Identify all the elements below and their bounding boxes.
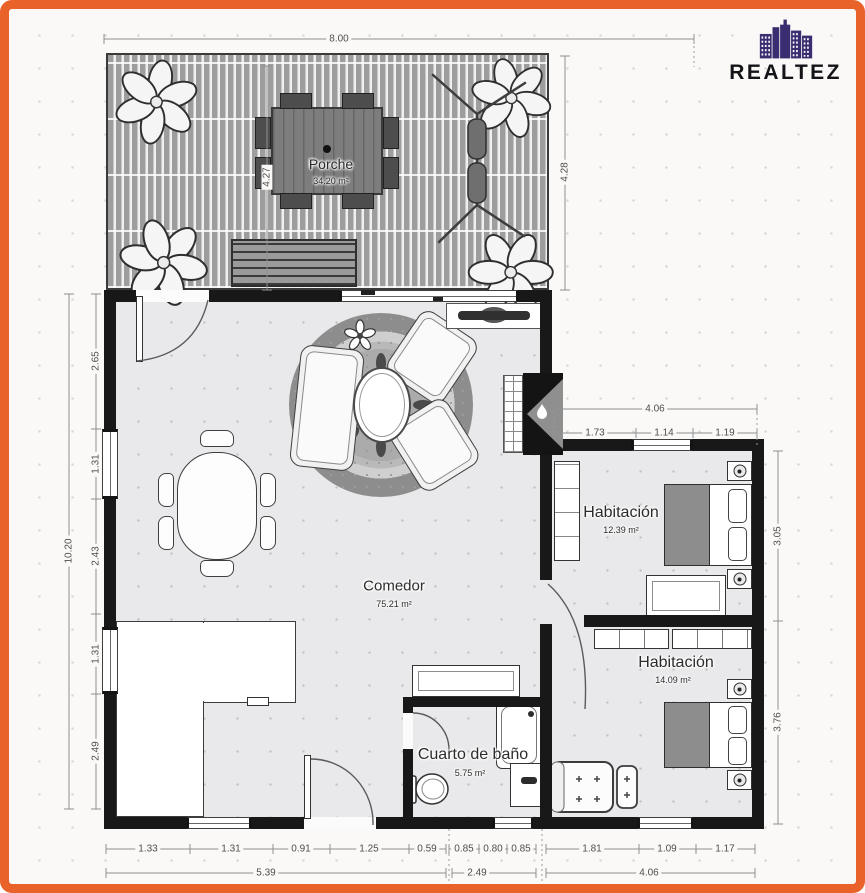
dim-label-top-width: 8.00 xyxy=(326,34,351,45)
flower-decor-icon xyxy=(343,319,377,358)
city-skyline-icon xyxy=(759,19,813,59)
dim-label-bed2-height: 3.76 xyxy=(773,709,784,734)
wardrobe xyxy=(554,461,580,561)
dining-chair xyxy=(200,560,234,577)
dim-label-total: 4.06 xyxy=(636,868,661,879)
wardrobe xyxy=(594,629,669,649)
window xyxy=(637,817,694,829)
nightstand xyxy=(727,679,752,699)
brand-logo: REALTEZ xyxy=(729,19,842,85)
brand-name: REALTEZ xyxy=(729,61,842,85)
room-label-porche: Porche xyxy=(309,156,353,172)
room-label-habitacion-1: Habitación xyxy=(583,504,659,522)
dim-label-porch-right: 4.28 xyxy=(560,159,571,184)
window xyxy=(102,429,118,499)
dim-label-bed1-width: 4.06 xyxy=(642,404,667,415)
potted-plant-icon xyxy=(106,52,206,157)
door-leaf xyxy=(136,296,143,362)
dim-label: 1.25 xyxy=(356,844,381,855)
dim-label: 1.73 xyxy=(582,428,607,439)
room-label-comedor: Comedor xyxy=(363,578,425,595)
room-label-bano: Cuarto de baño xyxy=(418,746,528,764)
dining-chair xyxy=(158,473,174,507)
lamp-icon xyxy=(733,774,746,787)
wall xyxy=(403,697,542,707)
dim-label: 0.85 xyxy=(451,844,476,855)
kitchen-counter xyxy=(116,621,204,817)
dim-label: 2.49 xyxy=(91,738,102,763)
room-area-porche: 34.20 m² xyxy=(313,176,349,186)
hall-door-gap xyxy=(540,580,552,624)
dim-label: 2.65 xyxy=(91,348,102,373)
dining-table xyxy=(177,452,257,560)
room-area-bano: 5.75 m² xyxy=(455,768,486,778)
dim-label: 1.14 xyxy=(651,428,676,439)
room-label-habitacion-2: Habitación xyxy=(638,654,714,672)
wall xyxy=(403,697,413,713)
lamp-icon xyxy=(733,683,746,696)
wall xyxy=(584,615,752,627)
wall xyxy=(540,290,552,829)
counter-seam xyxy=(118,695,202,703)
dim-label-left-total: 10.20 xyxy=(64,535,75,566)
dining-chair xyxy=(260,516,276,550)
door-leaf xyxy=(304,755,311,819)
door-track-mark xyxy=(433,297,443,301)
room-area-comedor: 75.21 m² xyxy=(376,599,412,609)
coffee-table xyxy=(353,367,411,443)
door-opening xyxy=(403,713,413,749)
outdoor-chair xyxy=(280,93,312,109)
faucet-icon xyxy=(521,777,537,784)
dresser xyxy=(646,575,726,617)
dining-chair xyxy=(200,430,234,447)
dining-chair xyxy=(260,473,276,507)
door-opening xyxy=(304,817,376,829)
lamp-icon xyxy=(733,465,746,478)
dim-label-porch-left: 4.27 xyxy=(262,164,273,189)
bed-blanket xyxy=(664,484,711,566)
sink xyxy=(247,697,269,706)
pillow xyxy=(728,737,747,765)
pillow xyxy=(728,489,747,523)
dim-label: 1.33 xyxy=(135,844,160,855)
dim-label-total: 2.49 xyxy=(464,868,489,879)
floor-plan-canvas: REALTEZ xyxy=(0,0,865,893)
window xyxy=(631,439,693,451)
door-track-mark xyxy=(361,290,375,295)
sideboard xyxy=(412,665,520,697)
wall xyxy=(209,290,339,302)
door-opening xyxy=(136,290,209,302)
dim-label: 2.43 xyxy=(91,543,102,568)
window xyxy=(186,817,252,829)
lamp-icon xyxy=(733,573,746,586)
flame-icon xyxy=(535,403,549,421)
outdoor-chair xyxy=(383,117,399,149)
dim-label: 0.80 xyxy=(480,844,505,855)
room-area-habitacion-1: 12.39 m² xyxy=(603,525,639,535)
dim-label-total: 5.39 xyxy=(253,868,278,879)
dim-label: 0.59 xyxy=(414,844,439,855)
outdoor-chair xyxy=(383,157,399,189)
nightstand xyxy=(727,461,752,481)
dim-label: 1.31 xyxy=(218,844,243,855)
outdoor-chair xyxy=(255,117,271,149)
outdoor-chair xyxy=(342,93,374,109)
dining-chair xyxy=(158,516,174,550)
wall xyxy=(403,749,413,819)
nightstand xyxy=(727,770,752,790)
outdoor-chair xyxy=(342,193,374,209)
room-area-habitacion-2: 14.09 m² xyxy=(655,675,691,685)
nightstand xyxy=(727,569,752,589)
armchair xyxy=(549,759,641,820)
wall xyxy=(104,290,116,829)
drain-icon xyxy=(528,711,534,717)
wardrobe xyxy=(672,629,752,649)
dim-label: 1.81 xyxy=(579,844,604,855)
pillow xyxy=(728,527,747,561)
window xyxy=(492,817,534,829)
pillow xyxy=(728,706,747,734)
dim-label: 1.09 xyxy=(654,844,679,855)
counter-seam xyxy=(198,623,206,701)
porch-bench xyxy=(231,239,357,287)
dim-label: 1.17 xyxy=(712,844,737,855)
fireplace-hearth xyxy=(503,375,523,453)
window xyxy=(102,627,118,694)
dim-label: 1.19 xyxy=(712,428,737,439)
bed-blanket xyxy=(664,702,711,768)
tv-screen xyxy=(458,311,530,320)
dim-label: 1.31 xyxy=(91,641,102,666)
outdoor-chair xyxy=(280,193,312,209)
dim-label: 0.91 xyxy=(288,844,313,855)
wall xyxy=(752,439,764,829)
dim-label: 1.31 xyxy=(91,451,102,476)
dim-label-bed1-height: 3.05 xyxy=(773,523,784,548)
sink-vanity xyxy=(510,763,542,807)
fireplace xyxy=(523,373,563,455)
dim-label: 0.85 xyxy=(508,844,533,855)
